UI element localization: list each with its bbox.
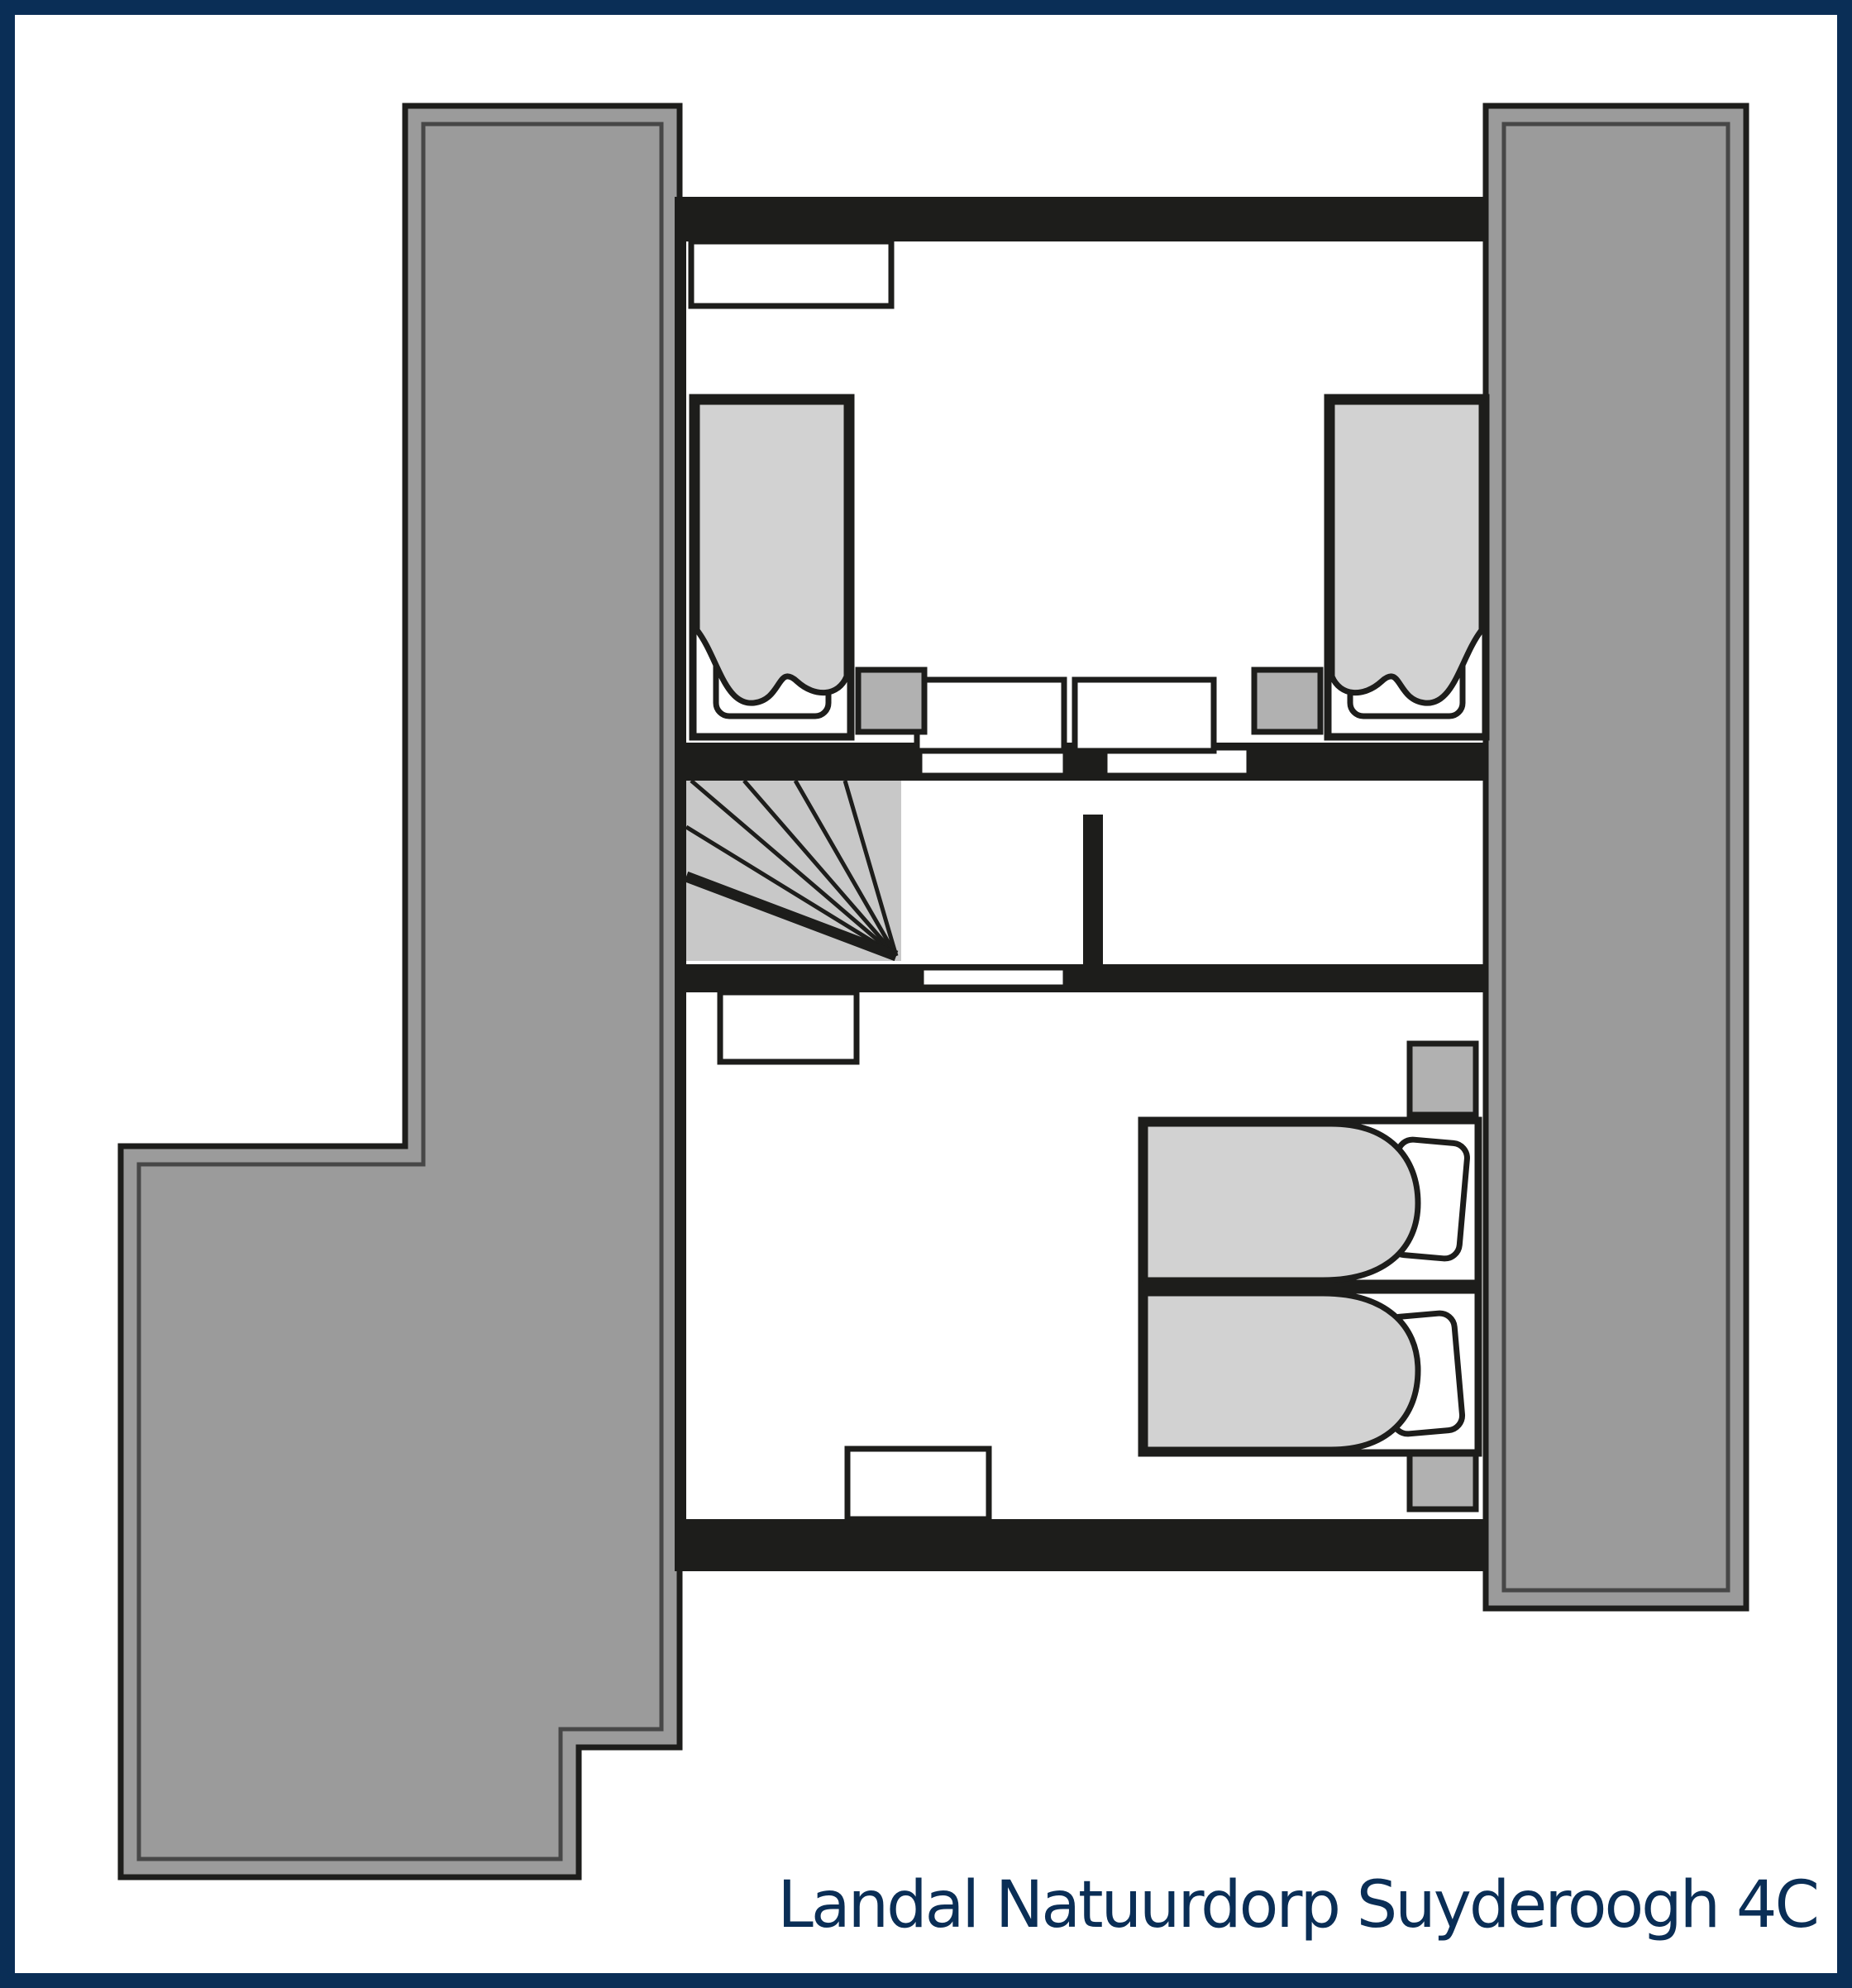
wall-left-side	[675, 197, 686, 1571]
wall-landing-divider	[680, 964, 1486, 992]
duvet	[697, 402, 847, 703]
wall-middle-vertical	[1083, 815, 1103, 964]
dresser-top-wall	[691, 241, 891, 306]
caption: Landal Natuurdorp Suyderoogh 4C	[777, 1872, 1817, 1940]
dresser-bottom-room-top	[720, 992, 857, 1062]
dresser-bottom-wall	[847, 1449, 989, 1519]
floorplan-page: Landal Natuurdorp Suyderoogh 4C	[0, 0, 1852, 1988]
duvet-bottom	[1145, 1293, 1418, 1450]
bed-double	[1142, 1044, 1478, 1509]
wall-exterior-top	[680, 197, 1486, 241]
door-opening-bottom-bedroom	[923, 969, 1064, 986]
roof-left	[121, 106, 680, 1877]
bottom-bedroom-furniture	[720, 992, 1478, 1519]
floorplan-drawing	[0, 0, 1852, 1988]
bed-single-right	[1254, 398, 1486, 737]
bed-single-left	[693, 398, 924, 737]
nightstand-double-top	[1410, 1044, 1476, 1115]
duvet-top	[1145, 1124, 1418, 1280]
duvet	[1332, 402, 1482, 703]
top-bedroom-furniture	[691, 241, 1486, 751]
nightstand-left-bed	[858, 670, 924, 732]
dresser-between-beds-right	[1075, 680, 1214, 751]
staircase	[686, 781, 901, 961]
wall-exterior-bottom	[680, 1519, 1486, 1571]
roof-right	[1486, 106, 1746, 1608]
dresser-between-beds-left	[917, 680, 1064, 751]
nightstand-right-bed	[1254, 670, 1320, 732]
